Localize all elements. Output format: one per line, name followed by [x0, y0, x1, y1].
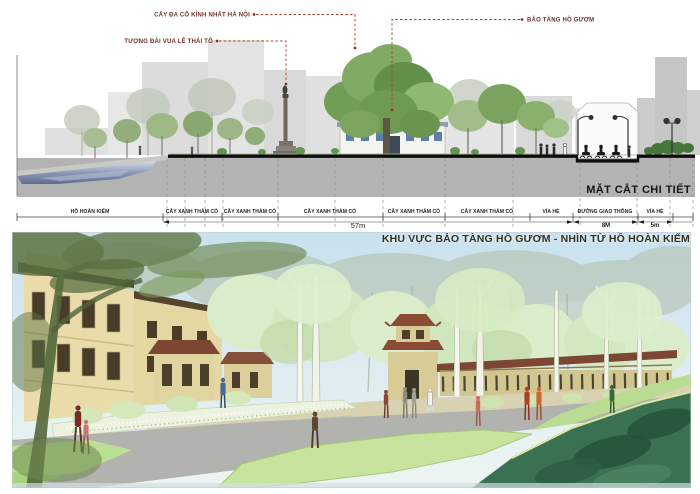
dimension-8m: 8M — [602, 223, 610, 229]
perspective-rendering — [12, 232, 691, 488]
section-title: MẶT CẮT CHI TIẾT — [586, 183, 691, 196]
scale-segment-label: VỈA HÈ — [542, 209, 559, 215]
bottom-edge — [12, 483, 691, 488]
scale-segment-label: CÂY XANH THẢM CỎ — [166, 209, 218, 215]
scale-segment-label: HỒ HOÀN KIẾM — [71, 209, 110, 215]
scale-segment-label: CÂY XANH THẢM CỎ — [461, 209, 513, 215]
cross-section-drawing: MẶT CẮT CHI TIẾT CÂY ĐA CỔ KÍNH NHẤT HÀ … — [0, 0, 700, 232]
scale-segment-label: ĐƯỜNG GIAO THÔNG — [578, 209, 633, 215]
statue-annotation: TƯỢNG ĐÀI VUA LÊ THÁI TỔ — [124, 37, 213, 45]
dimension-5m: 5m — [651, 223, 660, 229]
dimension-57m: 57m — [351, 221, 366, 230]
scale-segment-label: VỈA HÈ — [646, 209, 663, 215]
scale-segment-label: CÂY XANH THẢM CỎ — [388, 209, 440, 215]
museum-annotation: BẢO TÀNG HỒ GƯƠM — [527, 17, 594, 24]
banyan-annotation: CÂY ĐA CỔ KÍNH NHẤT HÀ NỘI — [154, 11, 250, 19]
scale-segment-label: CÂY XANH THẢM CỎ — [224, 209, 276, 215]
presentation-board: MẶT CẮT CHI TIẾT CÂY ĐA CỔ KÍNH NHẤT HÀ … — [0, 0, 700, 494]
perspective-title: KHU VỰC BẢO TÀNG HỒ GƯƠM - NHÌN TỪ HỒ HO… — [382, 233, 690, 245]
scale-segment-label: CÂY XANH THẢM CỎ — [304, 209, 356, 215]
